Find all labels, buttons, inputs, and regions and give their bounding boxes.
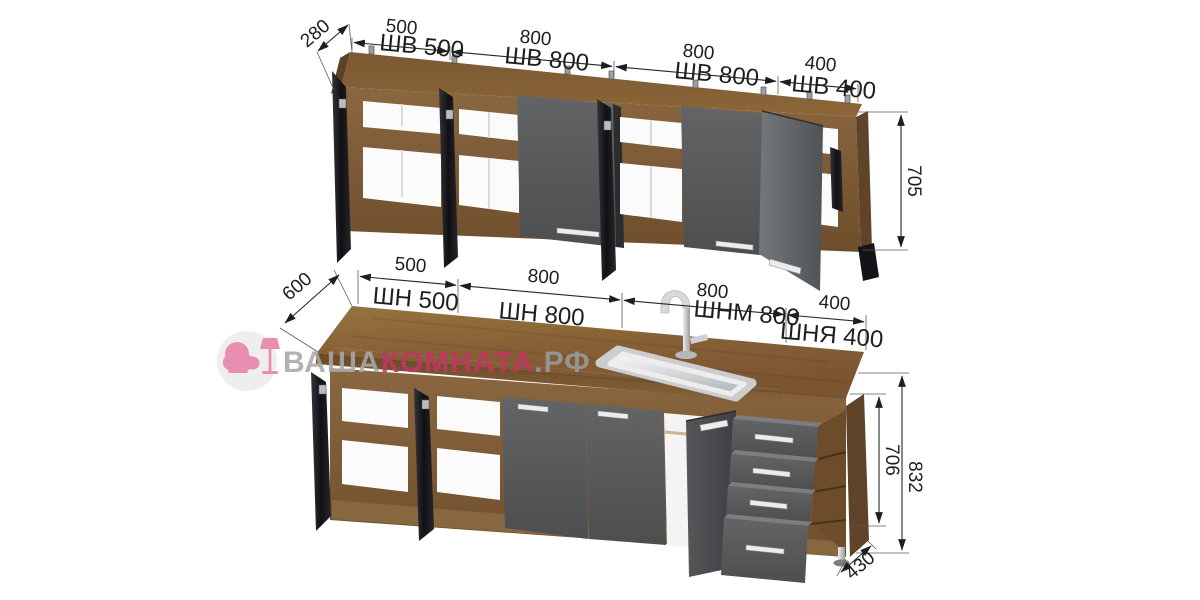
base-door-closed-1: [502, 397, 588, 539]
wall-module-500-shelves: [363, 101, 441, 207]
dim-base-total-height: 832: [904, 461, 925, 493]
brand-part-3: .РФ: [534, 346, 591, 379]
sink-door-closed: [586, 404, 666, 545]
brand-part-1: ВАША: [283, 346, 381, 379]
wall-door-closed-2: [681, 106, 769, 256]
dim-base-carcass-height: 706: [881, 444, 902, 476]
drawer-stack: [721, 415, 822, 583]
kitchen-drawing-canvas: 280 500 800 800 400 ШВ 500 ШВ 800 ШВ 800…: [0, 0, 1200, 600]
dim-wall-depth: 280: [297, 16, 335, 52]
dim-base-width-500: 500: [394, 254, 427, 278]
dim-base-width-800a: 800: [527, 266, 560, 290]
brand-part-2: КОМНАТА: [381, 346, 535, 379]
wall-door-open-angled: [759, 111, 823, 291]
dim-base-width-400: 400: [818, 292, 851, 316]
brand-text: ВАШАКОМНАТА.РФ: [283, 346, 591, 379]
dim-wall-height: 705: [903, 165, 924, 197]
kitchen-dimension-diagram: 280 500 800 800 400 ШВ 500 ШВ 800 ШВ 800…: [0, 0, 1200, 600]
